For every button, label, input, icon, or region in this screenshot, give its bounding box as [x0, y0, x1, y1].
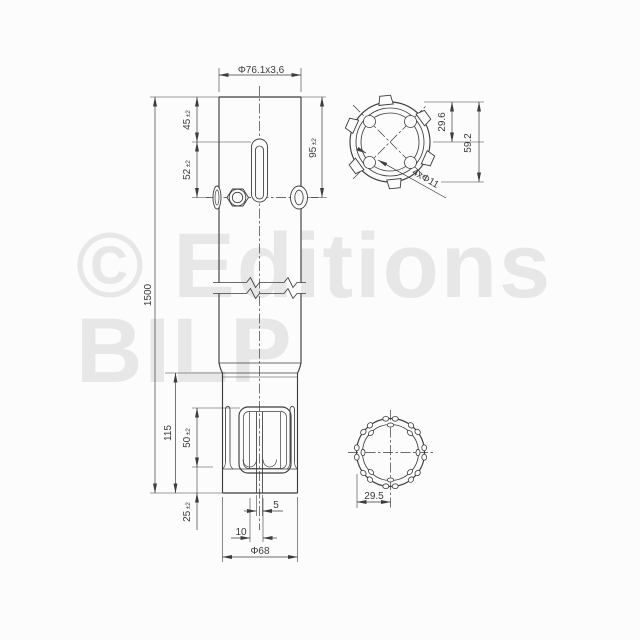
dim-bottom-offset-label: 25±2: [182, 502, 193, 522]
hex-screw: [227, 189, 249, 206]
dim-slit-pitch-label: 10: [235, 527, 247, 538]
inner-bosses: [364, 116, 417, 169]
dim-screw-offset-label: 52±2: [182, 160, 193, 180]
dim-window-height-label: 50±2: [182, 428, 193, 448]
dim-section-radius-label: 29.6: [437, 112, 448, 132]
front-view: Φ76.1x3,6 45±2 52±2 95±2 1500 115 50±2 2…: [143, 65, 327, 562]
side-groove-left: [223, 406, 234, 469]
top-section-view: 29.6 59.2 4xΦ11: [345, 95, 484, 198]
dim-slit-width-label: 5: [273, 500, 279, 511]
technical-drawing: Φ76.1x3,6 45±2 52±2 95±2 1500 115 50±2 2…: [0, 0, 640, 640]
edge-boss: [213, 186, 221, 209]
dim-upper-span-label: 95±2: [308, 138, 319, 158]
dim-spigot-radius-label: 29.5: [364, 491, 384, 502]
drawing-canvas: © Editions BILP: [0, 0, 640, 640]
dim-overall-length-label: 1500: [143, 283, 154, 306]
dim-section-diameter-label: 59.2: [463, 133, 474, 153]
side-groove-right: [287, 406, 298, 469]
dim-lower-section-label: 115: [163, 425, 174, 441]
dim-bottom-diameter-label: Φ68: [250, 546, 270, 557]
bottom-section-view: 29.5: [348, 410, 433, 508]
dim-tube-diameter-label: Φ76.1x3,6: [238, 65, 285, 76]
side-nut: [291, 186, 308, 209]
dim-slot-offset-label: 45±2: [182, 110, 193, 130]
bottom-window: [239, 407, 291, 493]
dim-section-holes-label: 4xΦ11: [410, 167, 441, 191]
cable-slot: [252, 139, 268, 202]
section-extension-lines: [424, 102, 484, 182]
